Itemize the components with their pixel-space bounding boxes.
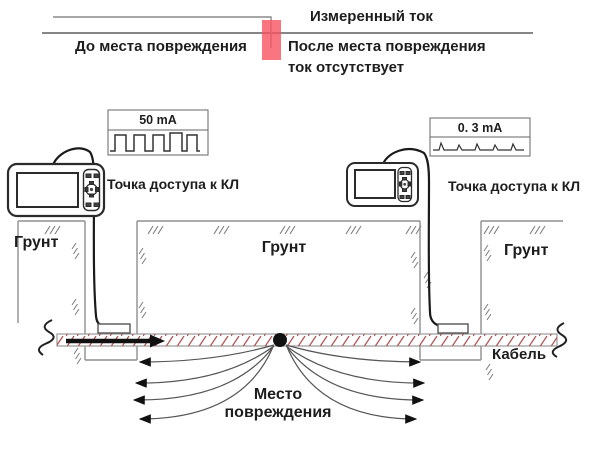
cable-label: Кабель xyxy=(492,346,546,363)
device-screen xyxy=(355,170,395,198)
after-fault-label-line1: После места повреждения xyxy=(288,38,486,55)
before-fault-label: До места повреждения xyxy=(75,38,247,55)
access-point-label-left: Точка доступа к КЛ xyxy=(107,176,239,192)
fault-marker-red xyxy=(262,20,281,60)
receiver-device-right xyxy=(347,163,418,206)
after-fault-label-line2: ток отсутствует xyxy=(288,59,404,76)
ground-sensor-left xyxy=(98,324,130,333)
fault-location-line1: Место xyxy=(208,386,348,404)
ground-label-right: Грунт xyxy=(504,242,548,260)
cable-break-left-icon xyxy=(39,320,54,355)
fault-point-dot xyxy=(273,333,287,347)
surface-hatch-marks xyxy=(45,226,545,234)
ground-label-left: Грунт xyxy=(14,234,58,252)
access-point-label-right: Точка доступа к КЛ xyxy=(448,178,580,194)
ground-sensor-right xyxy=(438,324,468,333)
fault-location-label: Место повреждения xyxy=(208,386,348,423)
ground-label-middle: Грунт xyxy=(239,239,329,257)
receiver-device-left xyxy=(8,164,104,216)
diagram-canvas: Измеренный ток До места повреждения Посл… xyxy=(0,0,600,456)
measured-current-label: Измеренный ток xyxy=(310,8,433,25)
meter-reading-right: 0. 3 mA xyxy=(430,121,530,135)
fault-location-line2: повреждения xyxy=(208,404,348,422)
device-screen xyxy=(17,173,78,207)
meter-reading-left: 50 mA xyxy=(108,113,208,127)
